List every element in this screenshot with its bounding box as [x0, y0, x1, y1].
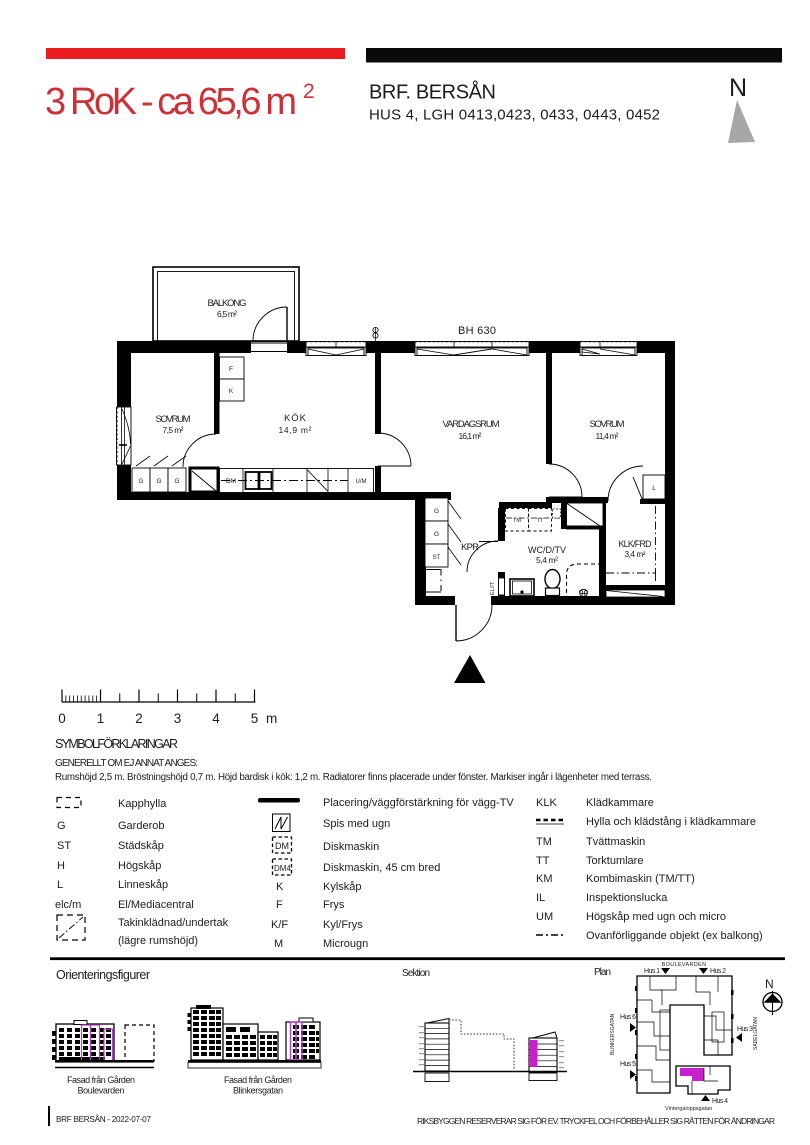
- svg-text:Garderob: Garderob: [118, 820, 164, 832]
- svg-text:F: F: [276, 899, 283, 911]
- svg-text:Fasad från Gården: Fasad från Gården: [224, 1075, 292, 1085]
- svg-text:Hus 1: Hus 1: [644, 968, 660, 975]
- svg-text:SADELGATAN: SADELGATAN: [753, 1017, 759, 1050]
- svg-text:11,4 m²: 11,4 m²: [596, 431, 619, 441]
- svg-text:TM: TM: [513, 518, 521, 524]
- svg-text:F: F: [229, 366, 233, 373]
- svg-text:Linneskåp: Linneskåp: [118, 879, 168, 891]
- svg-text:DM4: DM4: [274, 864, 291, 873]
- svg-text:RIKSBYGGEN RESERVERAR SIG FÖR: RIKSBYGGEN RESERVERAR SIG FÖR EV. TRYCKF…: [417, 1116, 775, 1126]
- svg-text:BALKONG: BALKONG: [208, 298, 247, 309]
- svg-text:Vintergaloppsgatan: Vintergaloppsgatan: [665, 1106, 712, 1112]
- svg-text:Hus 4: Hus 4: [712, 1098, 728, 1105]
- svg-text:6,5 m²: 6,5 m²: [217, 309, 237, 319]
- svg-text:Sektion: Sektion: [402, 968, 430, 979]
- svg-text:elc/m: elc/m: [55, 899, 81, 911]
- svg-text:5,4 m²: 5,4 m²: [536, 555, 558, 565]
- svg-text:BOULEVARDEN: BOULEVARDEN: [662, 962, 706, 968]
- svg-text:TT: TT: [536, 855, 550, 867]
- svg-text:Ovanförliggande objekt (ex ba: Ovanförliggande objekt (ex balkong): [586, 930, 763, 942]
- svg-text:BH 630: BH 630: [458, 325, 496, 337]
- svg-text:IL: IL: [536, 892, 545, 904]
- svg-text:BRF. BERSÅN: BRF. BERSÅN: [369, 81, 496, 104]
- svg-text:Takinklädnad/undertak: Takinklädnad/undertak: [118, 917, 229, 929]
- svg-text:ST: ST: [433, 555, 441, 561]
- svg-text:G: G: [138, 478, 143, 485]
- svg-text:Kombimaskin (TM/TT): Kombimaskin (TM/TT): [586, 873, 695, 885]
- svg-text:KM: KM: [536, 873, 553, 885]
- svg-text:Rumshöjd 2,5 m. Bröstningshöjd: Rumshöjd 2,5 m. Bröstningshöjd 0,7 m. Hö…: [55, 772, 652, 783]
- svg-text:1: 1: [97, 711, 105, 726]
- svg-text:K: K: [229, 388, 234, 395]
- svg-text:2: 2: [303, 80, 315, 103]
- svg-text:3 RoK - ca 65,6 m: 3 RoK - ca 65,6 m: [45, 81, 297, 123]
- svg-text:N: N: [729, 74, 747, 102]
- svg-text:3,4 m²: 3,4 m²: [625, 549, 646, 559]
- svg-text:Kylskåp: Kylskåp: [323, 881, 362, 893]
- svg-text:K/F: K/F: [271, 919, 288, 931]
- svg-text:Torktumlare: Torktumlare: [586, 855, 643, 867]
- svg-text:G: G: [156, 478, 161, 485]
- svg-text:Hylla och klädstång i klädkamm: Hylla och klädstång i klädkammare: [586, 816, 756, 828]
- svg-text:Högskåp: Högskåp: [118, 860, 161, 872]
- svg-text:DM: DM: [275, 841, 289, 851]
- svg-text:Placering/väggförstärkning för: Placering/väggförstärkning för vägg-TV: [323, 797, 514, 809]
- svg-text:Hus 6: Hus 6: [620, 1014, 636, 1021]
- svg-text:TM: TM: [536, 836, 552, 848]
- svg-text:VARDAGSRUM: VARDAGSRUM: [443, 419, 500, 430]
- svg-text:TT: TT: [537, 518, 544, 524]
- svg-text:Tvättmaskin: Tvättmaskin: [586, 836, 645, 848]
- svg-text:Högskåp med ugn och micro: Högskåp med ugn och micro: [586, 911, 726, 923]
- svg-text:Blinkersgatan: Blinkersgatan: [233, 1086, 283, 1096]
- svg-text:El/Mediacentral: El/Mediacentral: [118, 899, 194, 911]
- svg-text:Orienteringsfigurer: Orienteringsfigurer: [56, 968, 150, 982]
- svg-text:Microugn: Microugn: [323, 938, 368, 950]
- svg-text:Städskåp: Städskåp: [118, 840, 164, 852]
- svg-text:(lägre rumshöjd): (lägre rumshöjd): [118, 935, 198, 947]
- svg-text:0: 0: [58, 711, 66, 726]
- svg-text:Hus 2: Hus 2: [710, 968, 726, 975]
- svg-text:Plan: Plan: [594, 967, 611, 978]
- svg-text:H: H: [57, 860, 65, 872]
- svg-text:M: M: [274, 938, 283, 950]
- svg-text:KLK: KLK: [536, 797, 557, 809]
- svg-text:Kyl/Frys: Kyl/Frys: [323, 919, 363, 931]
- svg-text:Boulevarden: Boulevarden: [78, 1086, 125, 1096]
- svg-text:KÖK: KÖK: [284, 413, 307, 424]
- svg-text:7,5 m²: 7,5 m²: [163, 425, 184, 435]
- svg-text:Inspektionslucka: Inspektionslucka: [586, 892, 668, 904]
- svg-text:U/M: U/M: [356, 479, 367, 485]
- svg-text:14,9 m²: 14,9 m²: [279, 425, 312, 435]
- svg-text:Klädkammare: Klädkammare: [586, 797, 654, 809]
- svg-text:4: 4: [212, 711, 220, 726]
- svg-text:Spis med ugn: Spis med ugn: [323, 818, 390, 830]
- svg-text:G: G: [434, 531, 439, 538]
- svg-text:Diskmaskin, 45 cm bred: Diskmaskin, 45 cm bred: [323, 862, 440, 874]
- svg-text:16,1 m²: 16,1 m²: [459, 431, 482, 441]
- svg-text:Hus 5: Hus 5: [620, 1061, 636, 1068]
- svg-text:N: N: [765, 977, 774, 991]
- svg-text:BRF BERSÅN - 2022-07-07: BRF BERSÅN - 2022-07-07: [56, 1114, 151, 1124]
- svg-text:Fasad från Gården: Fasad från Gården: [67, 1075, 135, 1085]
- svg-text:SOVRUM: SOVRUM: [156, 414, 191, 425]
- svg-text:KPR: KPR: [461, 542, 479, 553]
- svg-text:Kapphylla: Kapphylla: [118, 798, 167, 810]
- svg-text:K: K: [276, 881, 284, 893]
- svg-text:SYMBOLFÖRKLARINGAR: SYMBOLFÖRKLARINGAR: [55, 737, 178, 751]
- svg-text:WC/D/TV: WC/D/TV: [528, 545, 566, 555]
- svg-text:BLINKERSGATAN: BLINKERSGATAN: [610, 1013, 616, 1055]
- svg-text:m: m: [266, 711, 277, 726]
- svg-text:3: 3: [174, 711, 182, 726]
- svg-text:SOVRUM: SOVRUM: [590, 419, 625, 430]
- svg-text:KLK/FRD: KLK/FRD: [619, 539, 652, 549]
- svg-text:Diskmaskin: Diskmaskin: [323, 841, 379, 853]
- svg-text:HUS 4, LGH 0413,0423, 0433, 04: HUS 4, LGH 0413,0423, 0433, 0443, 0452: [369, 107, 660, 124]
- svg-text:ST: ST: [57, 840, 71, 852]
- svg-text:G: G: [57, 820, 66, 832]
- svg-text:5: 5: [251, 711, 259, 726]
- svg-text:GENERELLT OM EJ ANNAT ANGES:: GENERELLT OM EJ ANNAT ANGES:: [55, 758, 198, 769]
- svg-text:2: 2: [135, 711, 143, 726]
- svg-text:G: G: [174, 478, 179, 485]
- svg-text:G: G: [434, 508, 439, 515]
- svg-text:Frys: Frys: [323, 899, 345, 911]
- svg-text:UM: UM: [536, 911, 553, 923]
- svg-text:Hus 3: Hus 3: [737, 1026, 753, 1033]
- svg-text:EL/IT: EL/IT: [490, 581, 496, 595]
- svg-text:DM: DM: [226, 478, 236, 485]
- svg-text:L: L: [57, 879, 63, 891]
- svg-text:L: L: [652, 485, 656, 492]
